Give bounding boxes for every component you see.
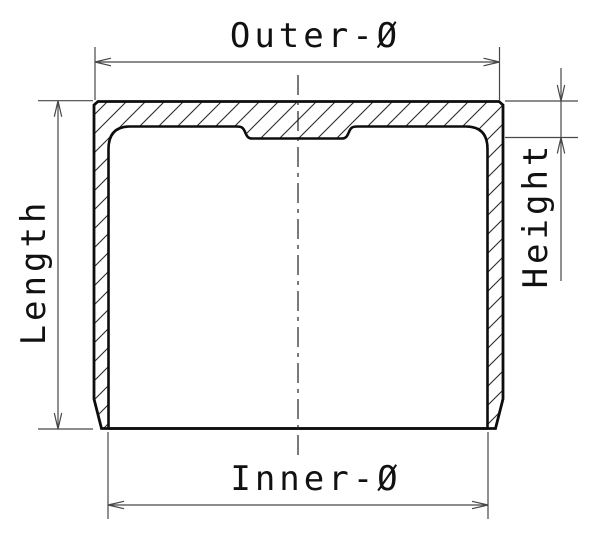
part-inner-contour (109, 127, 488, 429)
technical-drawing-page: Outer-Ø Inner-Ø Length Height (0, 0, 600, 553)
inner-diameter-label: Inner-Ø (108, 461, 506, 497)
height-label: Height (518, 130, 554, 300)
length-label: Length (16, 187, 52, 357)
outer-diameter-label: Outer-Ø (95, 18, 518, 54)
